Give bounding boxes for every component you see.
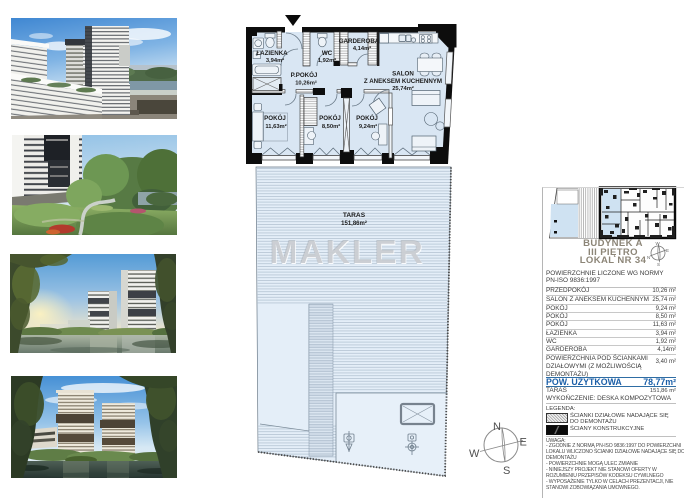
svg-text:ŁAZIENKA: ŁAZIENKA — [256, 50, 288, 57]
svg-text:25,74m²: 25,74m² — [392, 85, 414, 92]
svg-text:N: N — [493, 421, 501, 433]
svg-text:3,94m²: 3,94m² — [266, 57, 284, 64]
svg-text:E: E — [520, 437, 527, 449]
svg-text:S: S — [503, 465, 510, 477]
svg-text:10,26m²: 10,26m² — [295, 80, 317, 87]
svg-text:151,86m²: 151,86m² — [341, 220, 367, 227]
svg-text:P.POKÓJ: P.POKÓJ — [291, 71, 318, 79]
svg-text:POKÓJ: POKÓJ — [264, 114, 286, 122]
svg-text:9,24m²: 9,24m² — [359, 123, 377, 130]
svg-text:4,14m²: 4,14m² — [353, 45, 371, 52]
svg-text:TARAS: TARAS — [343, 212, 366, 219]
svg-text:8,50m²: 8,50m² — [322, 123, 340, 130]
svg-text:WC: WC — [322, 50, 333, 57]
svg-text:SALON: SALON — [392, 71, 414, 78]
svg-text:POKÓJ: POKÓJ — [319, 114, 341, 122]
svg-text:POKÓJ: POKÓJ — [356, 114, 378, 122]
svg-text:GARDEROBA: GARDEROBA — [339, 38, 380, 45]
svg-text:Z ANEKSEM KUCHENNYM: Z ANEKSEM KUCHENNYM — [364, 78, 442, 85]
svg-text:1,92m²: 1,92m² — [318, 57, 336, 64]
svg-text:W: W — [469, 448, 480, 460]
svg-text:11,63m²: 11,63m² — [265, 123, 286, 130]
svg-text:MAKLER: MAKLER — [269, 234, 424, 271]
